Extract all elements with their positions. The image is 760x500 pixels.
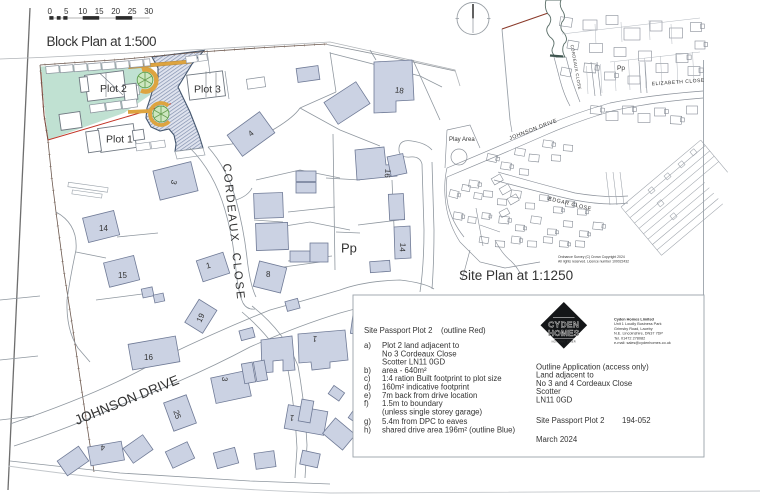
svg-text:8: 8 bbox=[266, 270, 271, 279]
svg-text:Pp: Pp bbox=[341, 241, 357, 256]
svg-text:10: 10 bbox=[78, 7, 87, 16]
svg-text:15: 15 bbox=[95, 7, 104, 16]
svg-text:14: 14 bbox=[99, 224, 108, 233]
svg-text:0: 0 bbox=[47, 7, 52, 16]
svg-text:NOTHING FINER: NOTHING FINER bbox=[552, 340, 576, 344]
svg-text:Site Passport Plot 2: Site Passport Plot 2 bbox=[364, 326, 432, 335]
svg-text:Cyden Homes Limited: Cyden Homes Limited bbox=[614, 318, 655, 322]
svg-text:30: 30 bbox=[144, 7, 153, 16]
svg-text:16: 16 bbox=[144, 353, 153, 362]
svg-text:15: 15 bbox=[118, 271, 127, 280]
svg-text:HOMES: HOMES bbox=[548, 329, 580, 338]
svg-text:16: 16 bbox=[383, 168, 393, 178]
svg-text:18: 18 bbox=[394, 85, 405, 95]
svg-text:Site Passport Plot 2: Site Passport Plot 2 bbox=[536, 416, 604, 425]
svg-text:Grimsby Road, Laceby: Grimsby Road, Laceby bbox=[614, 327, 653, 331]
svg-text:Play Area: Play Area bbox=[449, 137, 475, 143]
svg-text:Plot 3: Plot 3 bbox=[194, 84, 221, 96]
svg-text:14: 14 bbox=[398, 242, 408, 252]
svg-text:Tel. 01472 278082: Tel. 01472 278082 bbox=[614, 336, 645, 340]
svg-text:LN11 0GD: LN11 0GD bbox=[536, 395, 573, 404]
svg-text:5: 5 bbox=[64, 7, 69, 16]
svg-text:March 2024: March 2024 bbox=[536, 435, 578, 444]
svg-text:(unless single storey garage): (unless single storey garage) bbox=[382, 407, 483, 416]
svg-text:N.E. Lincolnshire, DN37 7DP: N.E. Lincolnshire, DN37 7DP bbox=[614, 332, 663, 336]
svg-text:All rights reserved. Licence n: All rights reserved. Licence number 1000… bbox=[558, 260, 629, 264]
svg-text:20: 20 bbox=[111, 7, 120, 16]
svg-text:CYDEN: CYDEN bbox=[548, 320, 579, 329]
svg-text:Block Plan at 1:500: Block Plan at 1:500 bbox=[47, 34, 157, 49]
svg-text:Ordnance Survey (C) Crown Copy: Ordnance Survey (C) Crown Copyright 2024 bbox=[558, 255, 625, 259]
svg-text:e-mail: sales@cydenhomes.co.uk: e-mail: sales@cydenhomes.co.uk bbox=[614, 341, 671, 345]
svg-text:194-052: 194-052 bbox=[622, 416, 651, 425]
svg-text:shared drive area 196m² (outli: shared drive area 196m² (outline Blue) bbox=[382, 425, 515, 434]
svg-text:Unit 1 Loudly Business Park: Unit 1 Loudly Business Park bbox=[614, 322, 662, 326]
svg-text:f): f) bbox=[364, 399, 369, 408]
svg-text:Plot 1: Plot 1 bbox=[106, 134, 133, 146]
svg-text:25: 25 bbox=[128, 7, 137, 16]
svg-text:Plot 2: Plot 2 bbox=[100, 83, 127, 95]
svg-text:a): a) bbox=[364, 341, 371, 350]
svg-text:Pp: Pp bbox=[617, 65, 625, 72]
svg-text:(outline Red): (outline Red) bbox=[441, 326, 486, 335]
svg-text:h): h) bbox=[364, 425, 371, 434]
svg-text:Site Plan at 1:1250: Site Plan at 1:1250 bbox=[459, 268, 573, 283]
